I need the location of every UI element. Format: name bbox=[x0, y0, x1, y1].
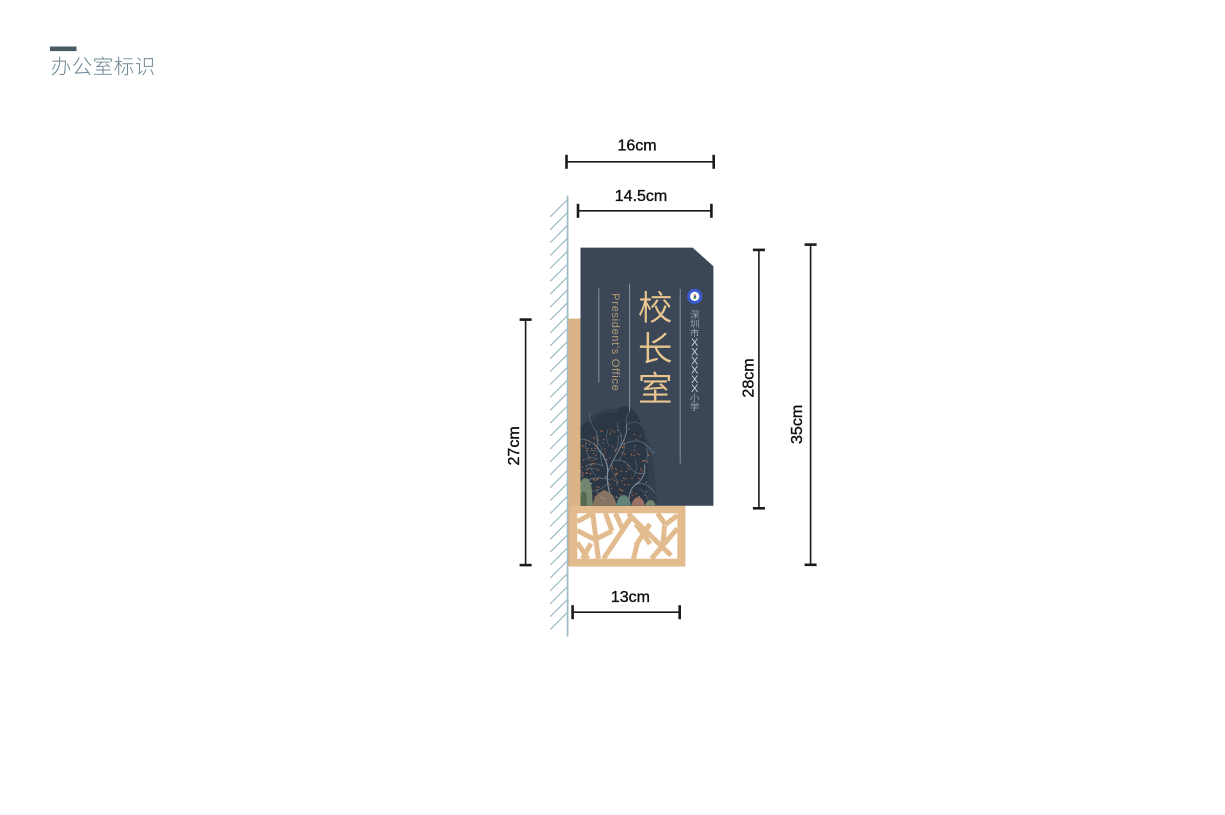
svg-text:X: X bbox=[691, 383, 699, 395]
svg-text:35cm: 35cm bbox=[789, 405, 806, 444]
svg-text:13cm: 13cm bbox=[611, 589, 650, 606]
svg-text:President's Office: President's Office bbox=[609, 293, 621, 391]
svg-text:27cm: 27cm bbox=[506, 426, 523, 465]
svg-text:16cm: 16cm bbox=[617, 138, 656, 155]
svg-text:28cm: 28cm bbox=[741, 358, 758, 397]
svg-text:14.5cm: 14.5cm bbox=[615, 188, 667, 205]
